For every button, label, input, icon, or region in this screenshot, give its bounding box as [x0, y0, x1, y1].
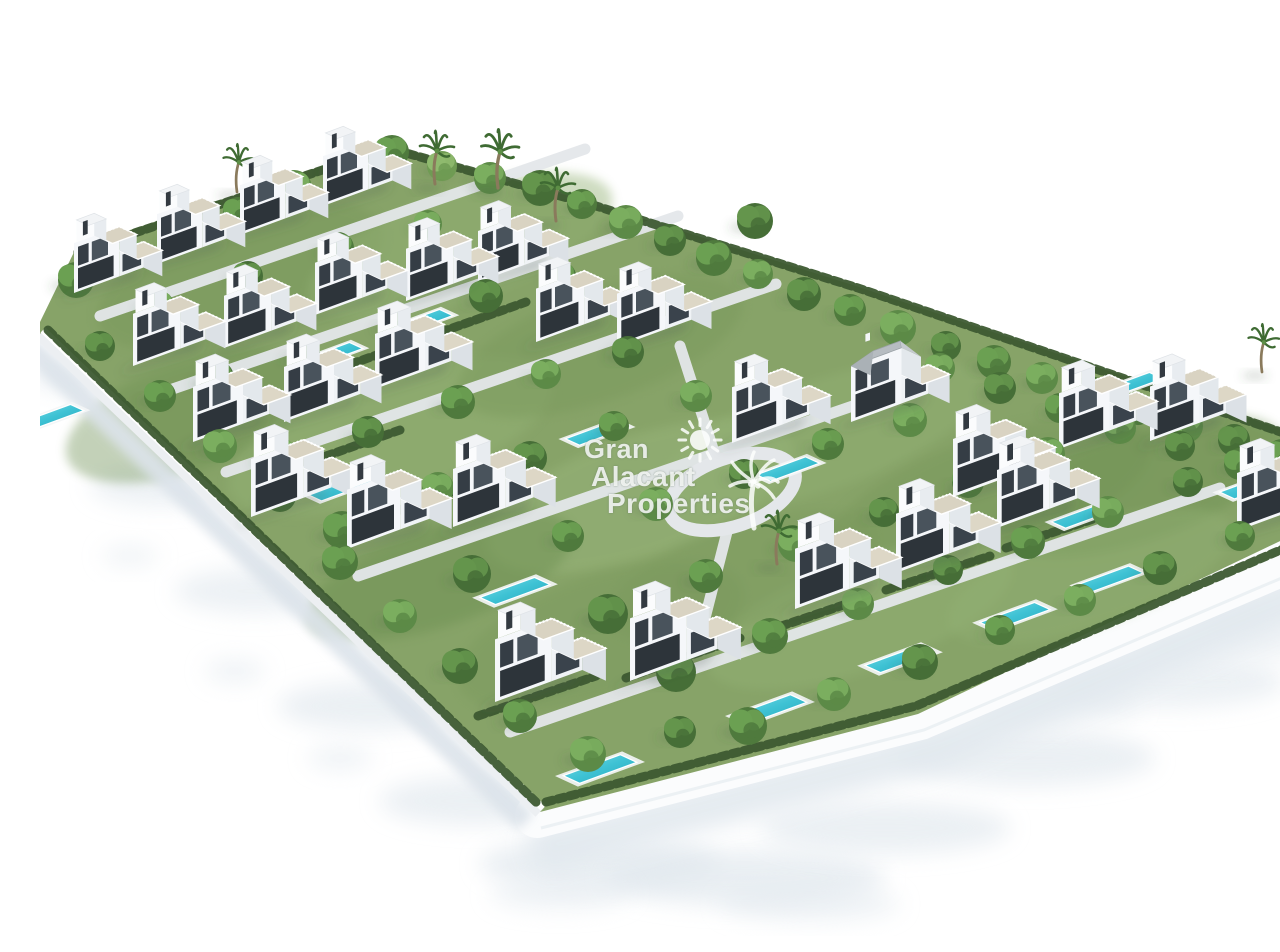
- tree-canopy: [702, 573, 716, 587]
- tree-canopy: [1104, 509, 1117, 522]
- facet: [78, 243, 89, 266]
- tree-canopy: [364, 429, 377, 442]
- tree-canopy: [336, 558, 351, 573]
- palm-crown: [777, 529, 782, 534]
- facet: [1069, 368, 1074, 385]
- facet: [958, 439, 970, 466]
- tree-canopy: [990, 359, 1004, 373]
- palm-shadow: [755, 564, 783, 572]
- facet: [198, 387, 210, 412]
- facet: [289, 367, 301, 392]
- ground-shadow: [490, 878, 630, 910]
- palm-crown: [556, 186, 561, 191]
- facet: [324, 239, 329, 255]
- tree-canopy: [800, 291, 814, 305]
- facet: [256, 459, 268, 486]
- tree-canopy: [854, 601, 867, 614]
- tree-canopy: [1236, 533, 1249, 546]
- tree-canopy: [754, 271, 767, 284]
- palm-frond: [437, 147, 454, 152]
- tree-canopy: [622, 219, 636, 233]
- facet: [142, 290, 147, 306]
- tree-canopy: [996, 385, 1009, 398]
- tree-canopy: [1024, 539, 1038, 553]
- palm-crown: [1262, 340, 1266, 344]
- tree: [729, 203, 773, 239]
- palm-crown: [237, 160, 241, 164]
- facet: [83, 220, 88, 236]
- facet: [410, 249, 421, 273]
- tree-canopy: [438, 163, 451, 176]
- palm-crown: [498, 149, 503, 154]
- palm-trunk: [1261, 342, 1264, 372]
- facet: [463, 442, 469, 460]
- facet: [487, 207, 492, 223]
- facet: [806, 521, 812, 540]
- facet: [1247, 446, 1253, 464]
- facet: [332, 133, 337, 149]
- tree-canopy: [692, 393, 705, 406]
- tree-canopy: [467, 570, 483, 586]
- tree-canopy: [456, 662, 471, 677]
- tree-canopy: [751, 217, 766, 232]
- facet: [737, 387, 749, 412]
- facet: [1242, 473, 1254, 500]
- facet: [621, 293, 632, 317]
- tree-canopy: [624, 349, 637, 362]
- facet: [1002, 470, 1014, 497]
- tree-canopy: [906, 417, 920, 431]
- tree-canopy: [156, 393, 169, 406]
- ground-shadow: [308, 746, 372, 770]
- palm-shadow: [413, 184, 441, 192]
- palm-trunk: [236, 162, 239, 192]
- palm-tree: [1242, 324, 1279, 379]
- facet: [506, 610, 512, 630]
- facet: [546, 264, 551, 281]
- tree-canopy: [516, 713, 530, 727]
- facet: [901, 514, 914, 541]
- facet: [742, 362, 747, 379]
- facet: [380, 334, 392, 359]
- property-development-rendering: Gran Alacant Properties: [40, 16, 1280, 936]
- facet: [261, 432, 267, 450]
- tree-canopy: [743, 722, 759, 738]
- aerial-villa-scene: [40, 16, 1280, 936]
- tree-canopy: [1076, 597, 1089, 610]
- facet: [166, 191, 171, 207]
- tree-canopy: [584, 750, 599, 765]
- facet: [327, 156, 338, 179]
- ground-shadow: [760, 802, 1010, 854]
- facet: [228, 296, 239, 320]
- tree-canopy: [824, 441, 837, 454]
- facet: [540, 288, 551, 312]
- tree-canopy: [880, 509, 893, 522]
- facet: [963, 412, 969, 430]
- tree-canopy: [526, 455, 540, 469]
- facet: [635, 618, 648, 647]
- facet: [627, 269, 632, 286]
- tree-canopy: [710, 254, 725, 269]
- facet: [249, 162, 254, 178]
- palm-shadow: [1242, 372, 1267, 379]
- tree-canopy: [603, 610, 620, 627]
- facet: [458, 469, 470, 496]
- tree-canopy: [944, 567, 957, 580]
- facet: [641, 589, 647, 609]
- facet: [137, 314, 148, 338]
- tree-canopy: [1156, 565, 1170, 579]
- facet: [500, 639, 513, 668]
- tree-canopy: [96, 343, 109, 356]
- tree-canopy: [454, 399, 468, 413]
- tree-canopy: [1038, 375, 1051, 388]
- tree-canopy: [846, 307, 859, 320]
- tree-canopy: [542, 371, 555, 384]
- tree-canopy: [564, 533, 577, 546]
- facet: [415, 225, 420, 241]
- facet: [203, 361, 208, 378]
- ground-shadow: [720, 886, 900, 922]
- tree-canopy: [1176, 443, 1189, 456]
- palm-frond: [500, 147, 519, 152]
- facet: [319, 263, 330, 287]
- tree-canopy: [676, 729, 689, 742]
- tree-canopy: [830, 691, 844, 705]
- facet: [1007, 443, 1013, 461]
- facet: [865, 333, 870, 342]
- facet: [352, 490, 365, 517]
- tree-canopy: [996, 627, 1009, 640]
- facet: [244, 185, 255, 208]
- facet: [294, 341, 299, 358]
- tree-canopy: [396, 613, 410, 627]
- facet: [907, 486, 913, 505]
- tree-canopy: [216, 443, 230, 457]
- tree-canopy: [536, 184, 551, 199]
- palm-frond: [1264, 338, 1279, 342]
- facet: [800, 549, 813, 577]
- palm-crown: [435, 149, 440, 154]
- facet: [233, 272, 238, 288]
- tree-canopy: [652, 501, 666, 515]
- facet: [358, 462, 364, 481]
- tree-canopy: [740, 471, 753, 484]
- tree-canopy: [916, 658, 931, 673]
- ground-shadow: [205, 659, 265, 683]
- facet: [161, 214, 172, 237]
- palm-shadow: [474, 188, 505, 197]
- tree-canopy: [1184, 479, 1197, 492]
- tree-canopy: [666, 237, 679, 250]
- facet: [1160, 361, 1165, 378]
- ground-shadow: [102, 546, 158, 566]
- tree-canopy: [578, 201, 591, 214]
- tree-canopy: [610, 423, 623, 436]
- facet: [1064, 393, 1076, 418]
- tree-canopy: [894, 324, 909, 339]
- tree-canopy: [482, 293, 496, 307]
- tree-canopy: [766, 632, 781, 647]
- facet: [385, 308, 390, 325]
